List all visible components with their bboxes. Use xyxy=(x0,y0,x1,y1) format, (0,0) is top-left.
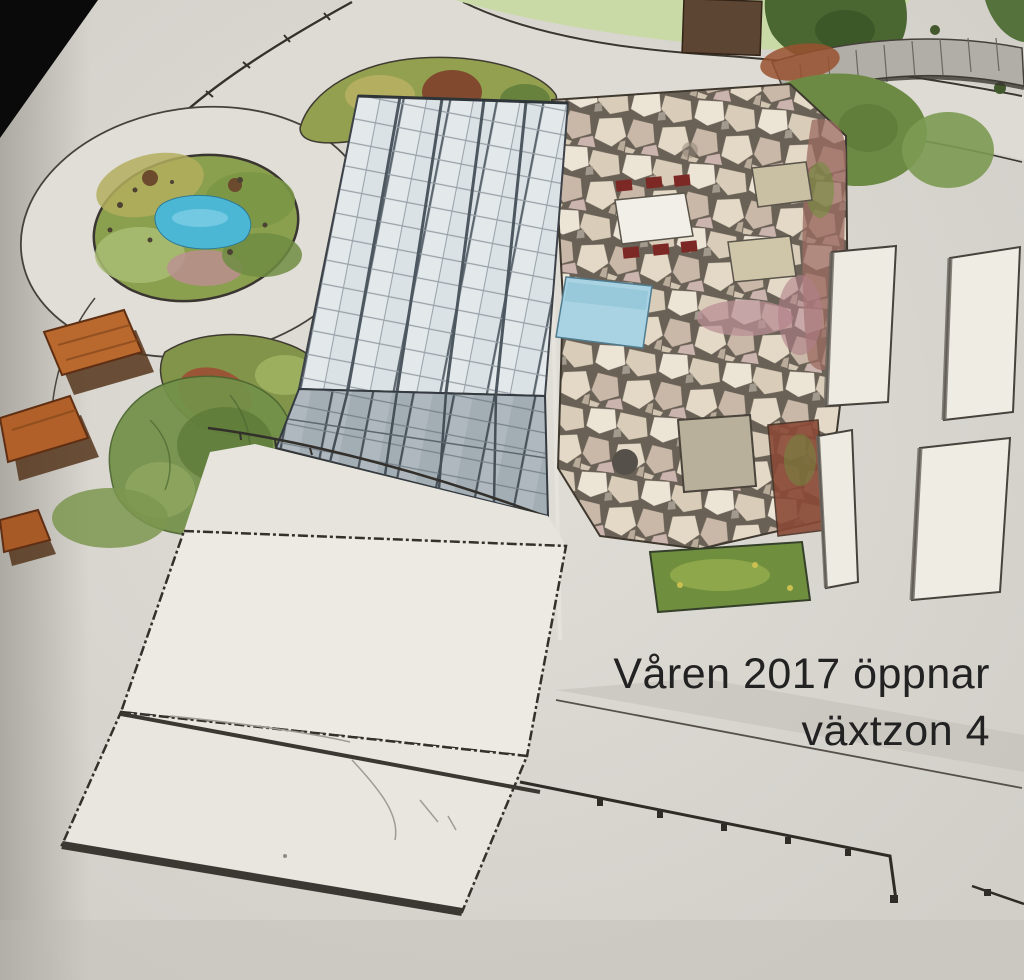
shrub-dot xyxy=(930,25,940,35)
garden-building xyxy=(682,0,762,55)
plan-photo: Våren 2017 öppnar växtzon 4 xyxy=(0,0,1024,980)
plan-drawing xyxy=(0,0,1024,980)
small-canopy xyxy=(52,488,168,548)
beige-table xyxy=(752,162,812,207)
hedge-speck xyxy=(752,562,758,568)
pond-highlight xyxy=(172,209,228,227)
hedge-speck xyxy=(677,582,683,588)
garden-slab xyxy=(826,246,896,406)
pencil-dot xyxy=(283,854,287,858)
bush-blob xyxy=(902,112,994,188)
dark-stone xyxy=(612,449,638,475)
stone-accent xyxy=(682,142,698,158)
bed-green-speck xyxy=(784,434,816,486)
garden-slab xyxy=(912,438,1010,600)
pink-bed xyxy=(778,275,822,355)
caption-line-1: Våren 2017 öppnar xyxy=(613,646,990,703)
plan-caption: Våren 2017 öppnar växtzon 4 xyxy=(613,646,990,760)
island-brown-patch xyxy=(142,170,158,186)
garden-slab xyxy=(818,430,858,588)
hedge-speck xyxy=(787,585,793,591)
edge-post xyxy=(984,889,991,896)
white-table xyxy=(615,193,693,244)
caption-line-2: växtzon 4 xyxy=(613,703,990,760)
garden-slab xyxy=(944,247,1020,420)
garden-pool xyxy=(556,277,652,348)
beige-table xyxy=(728,236,796,282)
large-platform-table xyxy=(678,415,756,492)
